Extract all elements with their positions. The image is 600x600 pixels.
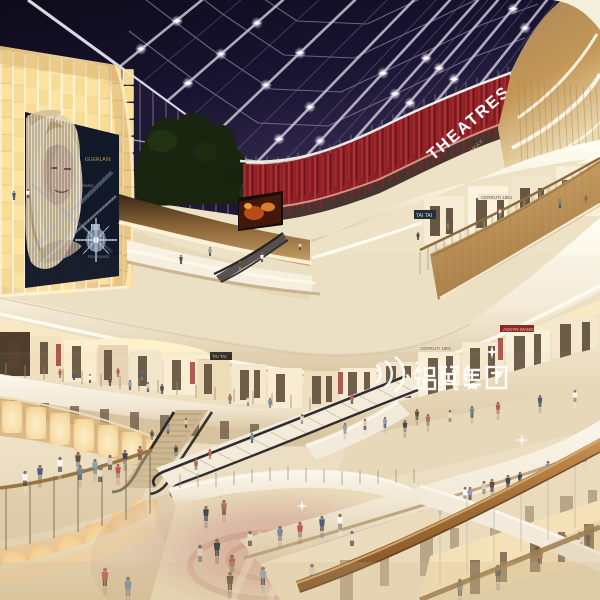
svg-text:CERRUTI 1881: CERRUTI 1881: [481, 195, 513, 200]
svg-text:GUERLAIN: GUERLAIN: [85, 157, 111, 163]
svg-text:TAI TAI: TAI TAI: [416, 213, 432, 219]
svg-text:PARIS: PARIS: [83, 184, 94, 188]
